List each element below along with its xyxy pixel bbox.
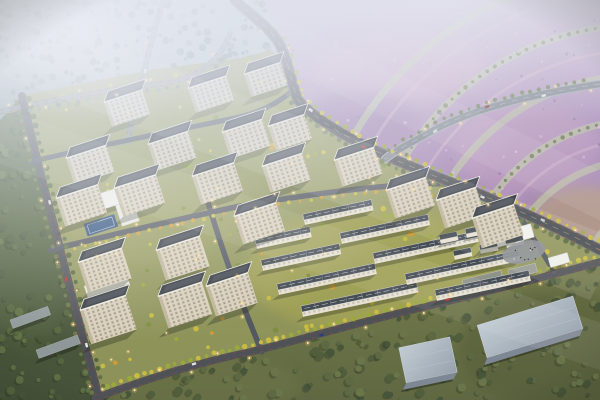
atmosphere-haze	[0, 0, 600, 400]
vignette	[0, 0, 600, 400]
aerial-rendering-stage	[0, 0, 600, 400]
scene-canvas	[0, 0, 600, 400]
